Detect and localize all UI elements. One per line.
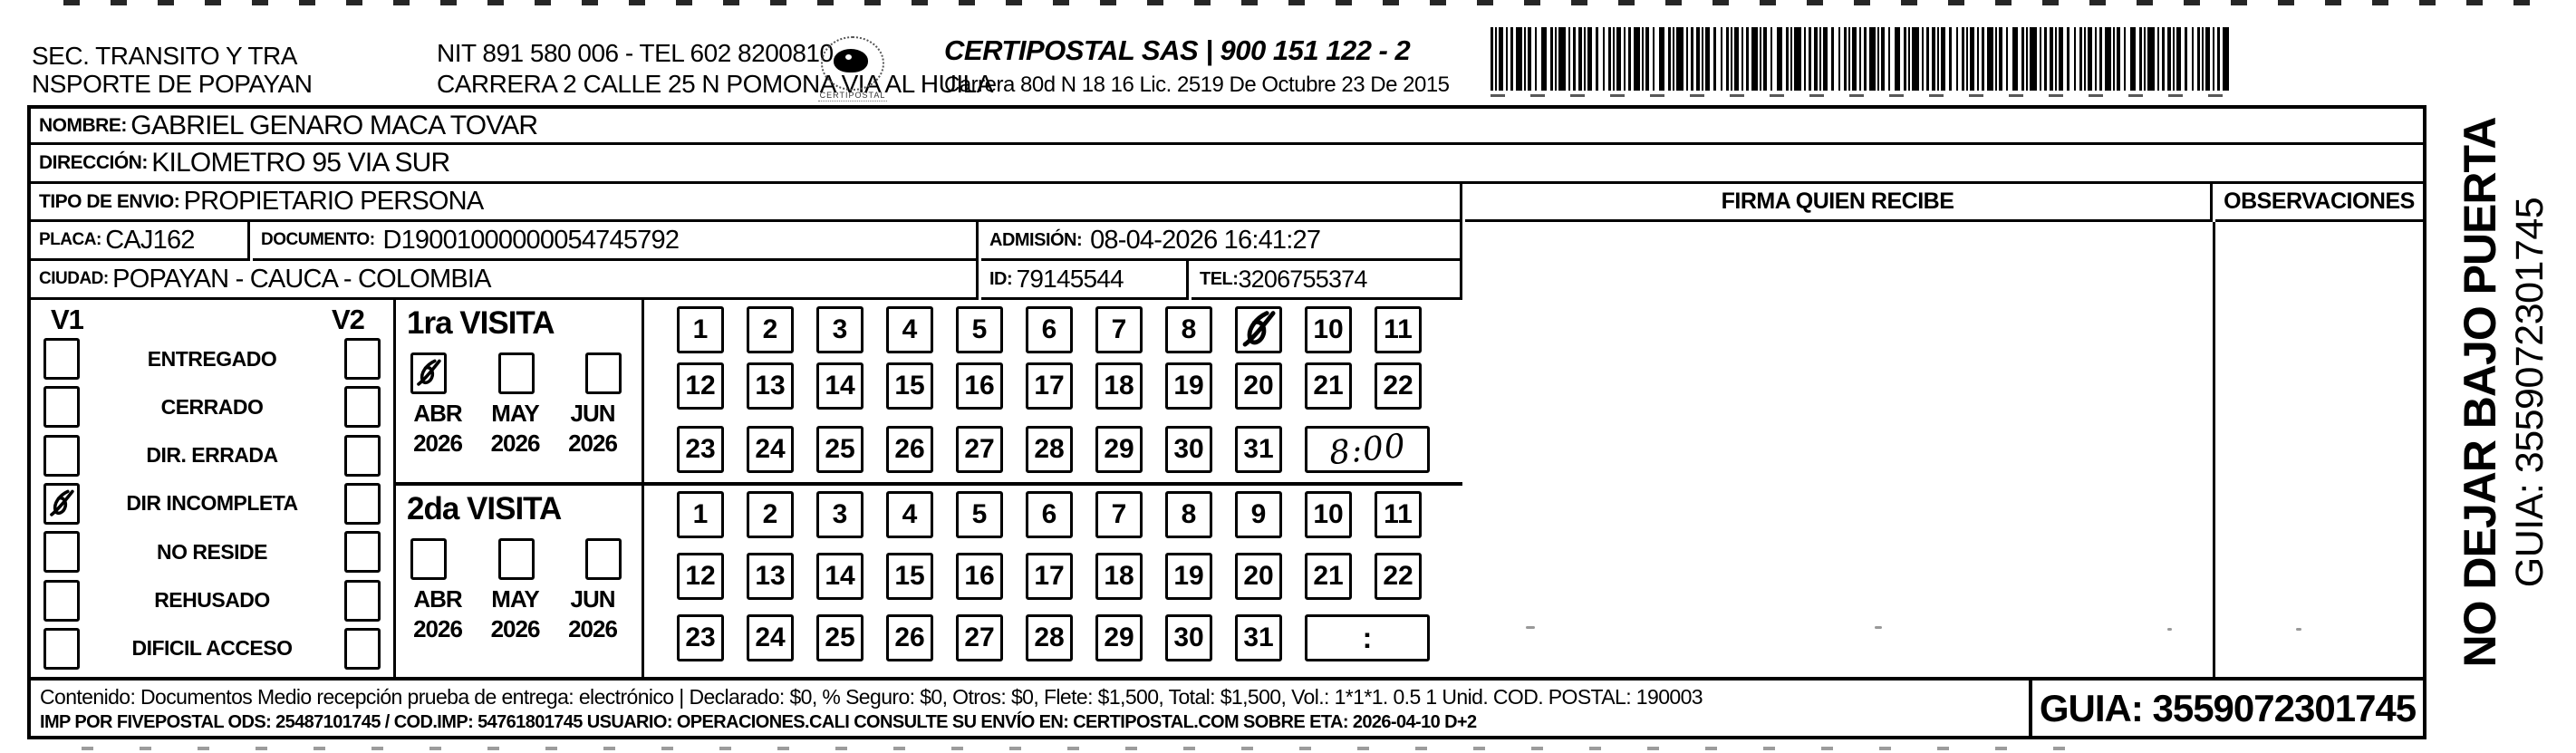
scan-dot bbox=[1875, 626, 1882, 629]
placa-label: PLACA: bbox=[39, 230, 101, 250]
logo-caption: CERTIPOSTAL bbox=[806, 91, 900, 100]
footer-band: Contenido: Documentos Medio recepción pr… bbox=[31, 677, 2423, 736]
v1-checkbox bbox=[43, 483, 80, 525]
carrier-name-line: CERTIPOSTAL SAS | 900 151 122 - 2 bbox=[944, 34, 1450, 67]
time-value: 8:00 bbox=[1327, 427, 1408, 472]
origin-block: NIT 891 580 006 - TEL 602 8200810 CARRER… bbox=[437, 38, 993, 100]
day-cell: 19 bbox=[1165, 553, 1212, 600]
barcode-bar bbox=[1794, 27, 1801, 91]
admision-cell: ADMISIÓN: 08-04-2026 16:41:27 bbox=[981, 222, 1462, 261]
day-cell: 20 bbox=[1235, 362, 1282, 410]
day-cell: 8 bbox=[1165, 306, 1212, 353]
year-label: 2026 bbox=[560, 615, 625, 643]
day-row: 1234567891011 bbox=[677, 491, 1422, 538]
month-label: MAY bbox=[483, 400, 548, 428]
footer-line-1: Contenido: Documentos Medio recepción pr… bbox=[40, 685, 2029, 710]
scan-dot bbox=[2167, 628, 2172, 631]
v1-checkbox bbox=[43, 386, 80, 428]
month-label: ABR bbox=[405, 585, 470, 613]
documento-cell: DOCUMENTO: D19001000000054745792 bbox=[253, 222, 979, 261]
day-cell: 12 bbox=[677, 553, 724, 600]
day-cell: 21 bbox=[1305, 362, 1352, 410]
day-cell: 7 bbox=[1095, 306, 1143, 353]
barcode-bar bbox=[2223, 27, 2229, 91]
month-checkbox-abr bbox=[410, 538, 447, 580]
id-label: ID: bbox=[989, 269, 1012, 290]
status-option-label: ENTREGADO bbox=[80, 347, 344, 372]
day-cell: 3 bbox=[816, 491, 863, 538]
day-cell: 25 bbox=[816, 614, 863, 661]
day-cell: 28 bbox=[1026, 614, 1073, 661]
barcode-bar bbox=[1751, 27, 1758, 91]
day-cell: 11 bbox=[1375, 491, 1422, 538]
year-label: 2026 bbox=[405, 615, 470, 643]
first-visit-panel: 1ra VISITA ABRMAYJUN 202620262026 bbox=[396, 300, 642, 482]
barcode-bar bbox=[1869, 27, 1876, 91]
documento-value: D19001000000054745792 bbox=[382, 226, 679, 256]
day-row: 1213141516171819202122 bbox=[677, 553, 1422, 600]
status-row: NO RESIDE bbox=[31, 531, 393, 573]
v1-checkbox bbox=[43, 435, 80, 477]
tipo-envio-label: TIPO DE ENVIO: bbox=[39, 191, 179, 213]
barcode-scan-artifact bbox=[1491, 94, 2230, 97]
v2-column-label: V2 bbox=[332, 304, 364, 336]
barcode-bar bbox=[1987, 27, 1993, 91]
v2-checkbox bbox=[344, 386, 381, 428]
id-value: 79145544 bbox=[1017, 265, 1124, 294]
status-row: DIFICIL ACCESO bbox=[31, 628, 393, 670]
v1-checkbox bbox=[43, 338, 80, 380]
day-cell: 4 bbox=[886, 491, 933, 538]
day-cell: 14 bbox=[816, 553, 863, 600]
time-cell: : bbox=[1305, 614, 1430, 661]
month-checkbox-abr bbox=[410, 352, 447, 394]
day-cell: 31 bbox=[1235, 426, 1282, 473]
first-visit-title: 1ra VISITA bbox=[396, 300, 642, 342]
day-cell: 23 bbox=[677, 614, 724, 661]
handwritten-x-mark bbox=[46, 488, 77, 519]
direccion-value: KILOMETRO 95 VIA SUR bbox=[151, 148, 449, 179]
time-cell: 8:00 bbox=[1305, 426, 1430, 473]
status-row: ENTREGADO bbox=[31, 338, 393, 380]
status-row: DIR. ERRADA bbox=[31, 435, 393, 477]
sender-line-2: NSPORTE DE POPAYAN bbox=[32, 70, 312, 98]
day-cell: 14 bbox=[816, 362, 863, 410]
day-cell: 2 bbox=[747, 491, 794, 538]
second-visit-year-labels: 202620262026 bbox=[396, 613, 642, 643]
first-visit-year-labels: 202620262026 bbox=[396, 428, 642, 458]
status-option-label: REHUSADO bbox=[80, 588, 344, 613]
v2-checkbox bbox=[344, 338, 381, 380]
carrier-license-line: Carrera 80d N 18 16 Lic. 2519 De Octubre… bbox=[944, 72, 1450, 98]
ciudad-cell: CIUDAD: POPAYAN - CAUCA - COLOMBIA bbox=[31, 261, 979, 300]
v2-checkbox bbox=[344, 628, 381, 670]
day-grid: 1234567810111213141516171819202122232425… bbox=[644, 300, 1462, 677]
year-label: 2026 bbox=[560, 430, 625, 458]
first-visit-month-checkboxes bbox=[396, 342, 642, 394]
logo-caption-underline bbox=[818, 101, 887, 101]
month-checkbox-jun bbox=[585, 352, 622, 394]
day-row: 123456781011 bbox=[677, 306, 1422, 353]
barcode-bar bbox=[1634, 27, 1640, 91]
day-cell: 30 bbox=[1165, 614, 1212, 661]
day-cell: 18 bbox=[1095, 362, 1143, 410]
day-cell: 30 bbox=[1165, 426, 1212, 473]
tel-cell: TEL:3206755374 bbox=[1192, 261, 1462, 300]
day-cell: 9 bbox=[1235, 491, 1282, 538]
barcode-bar bbox=[1912, 27, 1919, 91]
status-option-label: DIFICIL ACCESO bbox=[80, 636, 344, 661]
v1-column-label: V1 bbox=[51, 304, 83, 336]
nit-tel-line: NIT 891 580 006 - TEL 602 8200810 bbox=[437, 38, 993, 69]
tipo-envio-cell: TIPO DE ENVIO: PROPIETARIO PERSONA bbox=[31, 184, 1462, 222]
first-visit-month-labels: ABRMAYJUN bbox=[396, 394, 642, 428]
day-cell: 18 bbox=[1095, 553, 1143, 600]
sender-block: SEC. TRANSITO Y TRA NSPORTE DE POPAYAN bbox=[32, 42, 312, 98]
id-cell: ID: 79145544 bbox=[981, 261, 1189, 300]
side-guia-number: GUIA: 3559072301745 bbox=[2508, 198, 2552, 587]
second-visit-title: 2da VISITA bbox=[396, 486, 642, 527]
v2-checkbox bbox=[344, 483, 381, 525]
day-cell: 25 bbox=[816, 426, 863, 473]
visits-area: V1 V2 ENTREGADOCERRADODIR. ERRADADIR INC… bbox=[31, 300, 1462, 677]
status-rows: ENTREGADOCERRADODIR. ERRADADIR INCOMPLET… bbox=[31, 336, 393, 671]
placa-cell: PLACA: CAJ162 bbox=[31, 222, 250, 261]
scan-artifact-top bbox=[63, 0, 2531, 5]
month-checkbox-may bbox=[498, 352, 535, 394]
handwritten-x-mark bbox=[413, 358, 444, 389]
day-cell: 29 bbox=[1095, 426, 1143, 473]
day-cell: 16 bbox=[956, 362, 1003, 410]
status-option-label: DIR INCOMPLETA bbox=[80, 491, 344, 516]
day-cell: 13 bbox=[747, 362, 794, 410]
day-cell bbox=[1235, 306, 1282, 353]
tipo-envio-value: PROPIETARIO PERSONA bbox=[184, 187, 484, 217]
origin-address-line: CARRERA 2 CALLE 25 N POMONA VIA AL HUILA bbox=[437, 69, 993, 100]
direccion-label: DIRECCIÓN: bbox=[39, 152, 148, 174]
day-cell: 4 bbox=[886, 306, 933, 353]
sender-line-1: SEC. TRANSITO Y TRA bbox=[32, 42, 312, 70]
admision-label: ADMISIÓN: bbox=[989, 230, 1082, 251]
handwritten-x-mark bbox=[1238, 309, 1279, 351]
barcode-bar bbox=[1676, 27, 1684, 91]
scan-artifact-bottom bbox=[82, 747, 2069, 750]
side-vertical-text: NO DEJAR BAJO PUERTA GUIA: 3559072301745 bbox=[2435, 111, 2571, 673]
month-checkbox-may bbox=[498, 538, 535, 580]
day-cell: 5 bbox=[956, 306, 1003, 353]
day-cell: 21 bbox=[1305, 553, 1352, 600]
status-option-label: DIR. ERRADA bbox=[80, 443, 344, 468]
guia-number-box: GUIA: 3559072301745 bbox=[2029, 681, 2423, 736]
day-cell: 24 bbox=[747, 614, 794, 661]
day-cell: 19 bbox=[1165, 362, 1212, 410]
day-cell: 11 bbox=[1375, 306, 1422, 353]
observaciones-divider bbox=[2213, 222, 2215, 677]
second-visit-month-labels: ABRMAYJUN bbox=[396, 580, 642, 613]
firma-header: FIRMA QUIEN RECIBE bbox=[1465, 184, 2213, 222]
month-label: JUN bbox=[560, 585, 625, 613]
nombre-value: GABRIEL GENARO MACA TOVAR bbox=[130, 111, 537, 141]
v2-checkbox bbox=[344, 580, 381, 622]
day-cell: 10 bbox=[1305, 491, 1352, 538]
v1-checkbox bbox=[43, 580, 80, 622]
day-cell: 26 bbox=[886, 614, 933, 661]
status-panel: V1 V2 ENTREGADOCERRADODIR. ERRADADIR INC… bbox=[31, 300, 396, 677]
carrier-block: CERTIPOSTAL SAS | 900 151 122 - 2 Carrer… bbox=[944, 34, 1450, 98]
direccion-row: DIRECCIÓN: KILOMETRO 95 VIA SUR bbox=[31, 145, 2423, 184]
day-cell: 2 bbox=[747, 306, 794, 353]
day-cell: 1 bbox=[677, 306, 724, 353]
nombre-label: NOMBRE: bbox=[39, 115, 127, 137]
barcode-bar bbox=[2147, 27, 2155, 91]
placa-value: CAJ162 bbox=[105, 226, 194, 256]
tel-label: TEL: bbox=[1200, 269, 1238, 290]
day-row: 2324252627282930318:00 bbox=[677, 426, 1430, 473]
status-row: REHUSADO bbox=[31, 580, 393, 622]
day-cell: 20 bbox=[1235, 553, 1282, 600]
day-cell: 27 bbox=[956, 614, 1003, 661]
barcode-bar bbox=[2105, 27, 2111, 91]
logo-bird-shape bbox=[834, 49, 868, 72]
ciudad-label: CIUDAD: bbox=[39, 269, 109, 289]
second-visit-panel: 2da VISITA ABRMAYJUN 202620262026 bbox=[396, 486, 642, 677]
day-cell: 26 bbox=[886, 426, 933, 473]
day-cell: 6 bbox=[1026, 491, 1073, 538]
month-checkbox-jun bbox=[585, 538, 622, 580]
month-label: MAY bbox=[483, 585, 548, 613]
day-cell: 8 bbox=[1165, 491, 1212, 538]
day-cell: 22 bbox=[1375, 553, 1422, 600]
day-cell: 10 bbox=[1305, 306, 1352, 353]
documento-label: DOCUMENTO: bbox=[261, 230, 375, 250]
month-label: JUN bbox=[560, 400, 625, 428]
year-label: 2026 bbox=[483, 430, 548, 458]
barcode-bar bbox=[1558, 27, 1566, 91]
day-cell: 13 bbox=[747, 553, 794, 600]
status-row: DIR INCOMPLETA bbox=[31, 483, 393, 525]
admision-value: 08-04-2026 16:41:27 bbox=[1090, 226, 1320, 256]
year-label: 2026 bbox=[483, 615, 548, 643]
day-cell: 15 bbox=[886, 362, 933, 410]
observaciones-header: OBSERVACIONES bbox=[2215, 184, 2423, 222]
scan-dot bbox=[2296, 628, 2301, 631]
day-cell: 6 bbox=[1026, 306, 1073, 353]
day-cell: 23 bbox=[677, 426, 724, 473]
logo-eye-dot bbox=[845, 54, 852, 60]
day-row: 1213141516171819202122 bbox=[677, 362, 1422, 410]
status-option-label: CERRADO bbox=[80, 395, 344, 420]
v2-checkbox bbox=[344, 531, 381, 573]
no-dejar-warning: NO DEJAR BAJO PUERTA bbox=[2454, 118, 2506, 668]
day-cell: 17 bbox=[1026, 362, 1073, 410]
day-cell: 1 bbox=[677, 491, 724, 538]
barcode-gap bbox=[2229, 27, 2230, 91]
day-row: 232425262728293031: bbox=[677, 614, 1430, 661]
footer-text-cell: Contenido: Documentos Medio recepción pr… bbox=[31, 681, 2029, 736]
barcode-bar bbox=[1516, 27, 1522, 91]
day-cell: 12 bbox=[677, 362, 724, 410]
tel-value: 3206755374 bbox=[1238, 265, 1366, 294]
v1-checkbox bbox=[43, 628, 80, 670]
nombre-row: NOMBRE: GABRIEL GENARO MACA TOVAR bbox=[31, 109, 2423, 145]
year-label: 2026 bbox=[405, 430, 470, 458]
ciudad-value: POPAYAN - CAUCA - COLOMBIA bbox=[112, 265, 491, 294]
v2-checkbox bbox=[344, 435, 381, 477]
day-cell: 5 bbox=[956, 491, 1003, 538]
day-cell: 17 bbox=[1026, 553, 1073, 600]
time-value: : bbox=[1363, 622, 1373, 655]
day-cell: 27 bbox=[956, 426, 1003, 473]
scanned-shipping-label: SEC. TRANSITO Y TRA NSPORTE DE POPAYAN N… bbox=[0, 0, 2576, 753]
scan-dot bbox=[1526, 626, 1535, 629]
visit-month-panel: 1ra VISITA ABRMAYJUN 202620262026 2da VI… bbox=[396, 300, 644, 677]
day-cell: 31 bbox=[1235, 614, 1282, 661]
label-main-table: NOMBRE: GABRIEL GENARO MACA TOVAR DIRECC… bbox=[27, 105, 2426, 739]
day-cell: 3 bbox=[816, 306, 863, 353]
tracking-barcode bbox=[1491, 27, 2230, 91]
day-cell: 29 bbox=[1095, 614, 1143, 661]
day-cell: 24 bbox=[747, 426, 794, 473]
certipostal-logo-icon: CERTIPOSTAL bbox=[818, 36, 889, 107]
barcode-bar bbox=[2030, 27, 2037, 91]
status-row: CERRADO bbox=[31, 386, 393, 428]
day-cell: 22 bbox=[1375, 362, 1422, 410]
day-cell: 15 bbox=[886, 553, 933, 600]
status-option-label: NO RESIDE bbox=[80, 540, 344, 565]
day-cell: 28 bbox=[1026, 426, 1073, 473]
day-cell: 7 bbox=[1095, 491, 1143, 538]
second-visit-month-checkboxes bbox=[396, 527, 642, 580]
footer-line-2: IMP POR FIVEPOSTAL ODS: 25487101745 / CO… bbox=[40, 712, 2029, 733]
day-cell: 16 bbox=[956, 553, 1003, 600]
v1-checkbox bbox=[43, 531, 80, 573]
month-label: ABR bbox=[405, 400, 470, 428]
